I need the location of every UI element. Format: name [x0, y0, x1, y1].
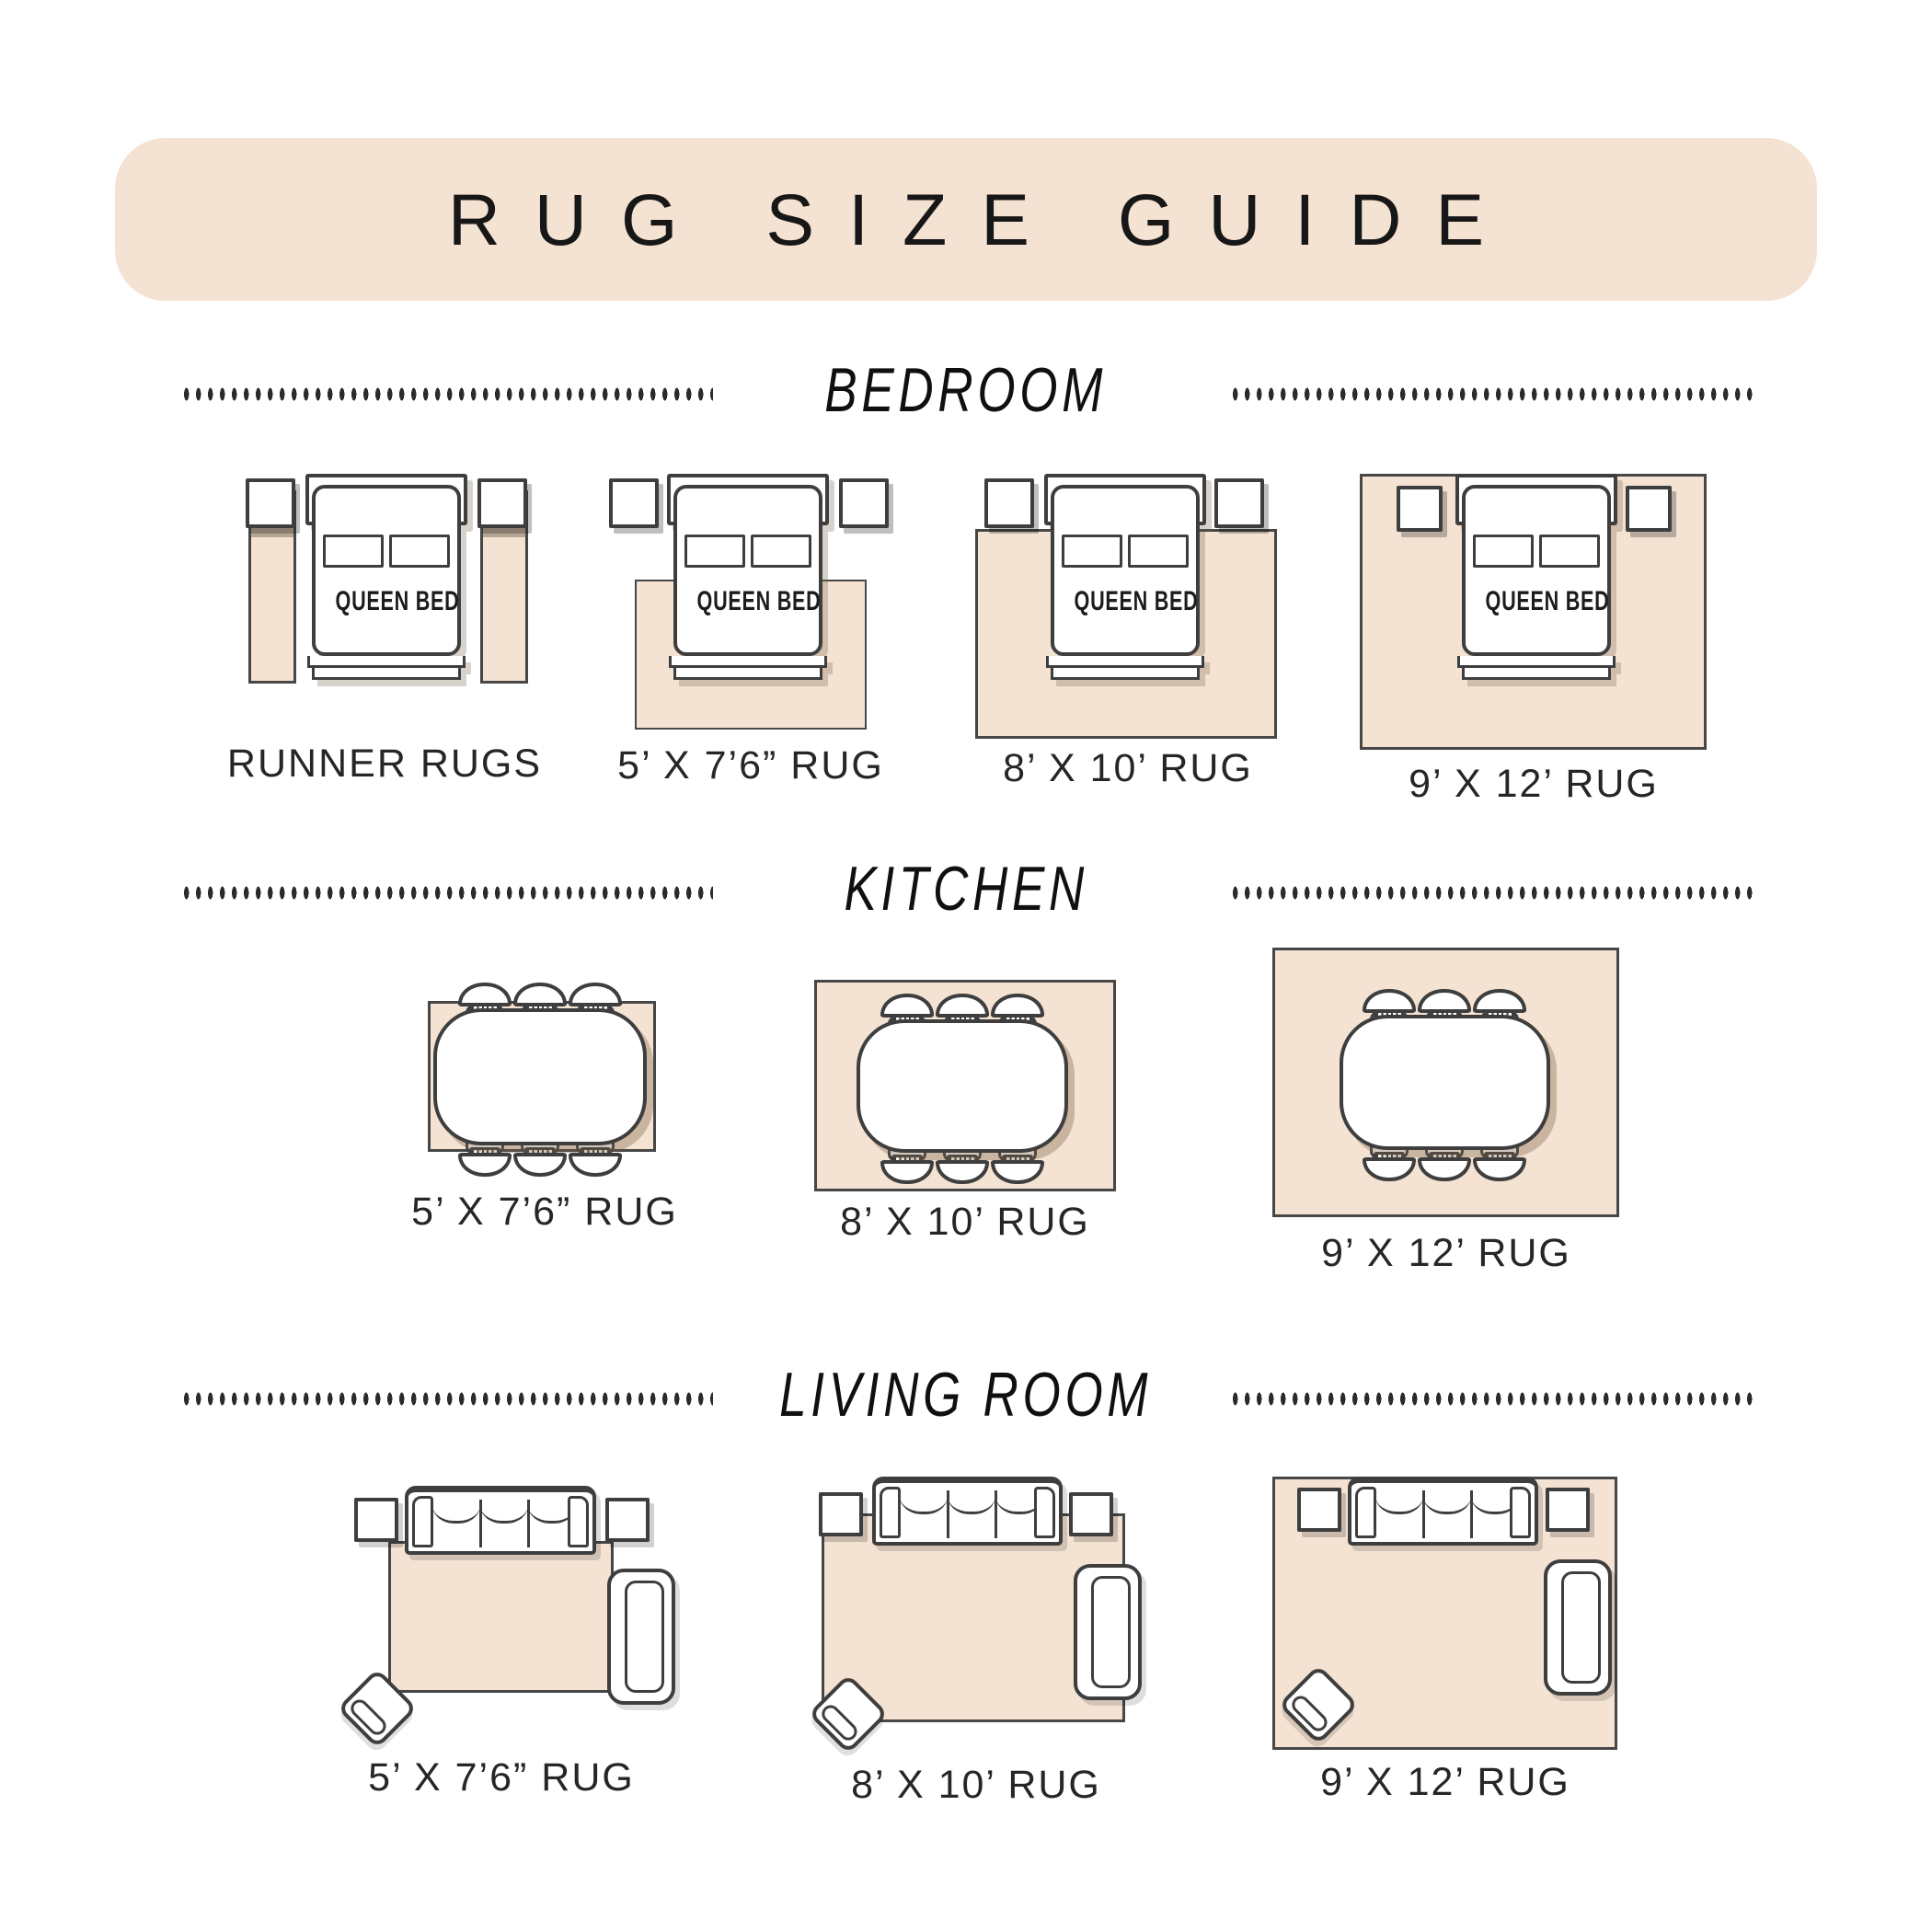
queen-bed: QUEEN BED: [1455, 474, 1617, 684]
sofa-cushion: [1375, 1489, 1423, 1514]
cushion-divider: [995, 1490, 997, 1538]
shadow: [483, 528, 525, 537]
dining-table: [433, 1008, 647, 1145]
foot-blanket: [1051, 668, 1200, 680]
divider-dots: [1233, 1392, 1753, 1406]
sofa-arm: [1034, 1487, 1055, 1538]
diagram-label: 8’ X 10’ RUG: [1003, 746, 1253, 791]
end-table: [1069, 1492, 1113, 1536]
cushion-divider: [1470, 1490, 1473, 1538]
sofa-cushion: [1423, 1489, 1471, 1514]
mattress: QUEEN BED: [312, 485, 461, 656]
sofa: [405, 1486, 596, 1555]
nightstand: [609, 478, 659, 528]
pillow: [389, 535, 450, 568]
divider-dots: [1233, 886, 1753, 900]
bed-label: QUEEN BED: [336, 586, 438, 617]
queen-bed: QUEEN BED: [1044, 474, 1206, 684]
sofa-arm: [1355, 1487, 1376, 1538]
queen-bed: QUEEN BED: [305, 474, 467, 684]
nightstand: [1626, 486, 1672, 532]
bed-label: QUEEN BED: [697, 586, 799, 617]
diagram-label: 9’ X 12’ RUG: [1409, 762, 1659, 807]
sofa-arm: [880, 1487, 901, 1538]
sofa-arm: [412, 1496, 433, 1547]
chair-back: [1561, 1571, 1601, 1684]
chair-back: [1091, 1576, 1131, 1688]
diagram-label: 9’ X 12’ RUG: [1321, 1231, 1571, 1276]
queen-bed: QUEEN BED: [667, 474, 829, 684]
living-room-9x12-diagram: 9’ X 12’ RUG: [1260, 1454, 1739, 1817]
diagram-label: 5’ X 7’6” RUG: [411, 1190, 678, 1235]
kitchen-9x12-diagram: 9’ X 12’ RUG: [1270, 938, 1656, 1279]
mattress: QUEEN BED: [1051, 485, 1200, 656]
bedroom-9x12-diagram: QUEEN BED 9’ X 12’ RUG: [1352, 460, 1739, 810]
foot-blanket: [673, 668, 822, 680]
shadow: [251, 528, 293, 537]
sofa: [1348, 1477, 1538, 1546]
foot-blanket: [1046, 656, 1204, 668]
diagram-label: 8’ X 10’ RUG: [851, 1763, 1101, 1808]
bedroom-8x10-diagram: QUEEN BED 8’ X 10’ RUG: [966, 460, 1352, 800]
cushion-divider: [947, 1490, 949, 1538]
bedroom-runner-rugs-diagram: QUEEN BED RUNNER RUGS: [202, 460, 570, 791]
foot-blanket: [1462, 668, 1611, 680]
diagram-label: RUNNER RUGS: [227, 742, 542, 787]
pillow: [1473, 535, 1534, 568]
bedroom-5x76-diagram: QUEEN BED 5’ X 7’6” RUG: [589, 460, 957, 800]
page-title: RUG SIZE GUIDE: [115, 138, 1817, 301]
bed-label: QUEEN BED: [1075, 586, 1177, 617]
mattress: QUEEN BED: [673, 485, 822, 656]
bed-label: QUEEN BED: [1486, 586, 1588, 617]
lounge-chair: [607, 1569, 675, 1705]
cushion-divider: [479, 1500, 482, 1547]
nightstand: [477, 478, 527, 528]
foot-blanket: [312, 668, 461, 680]
lounge-chair: [1544, 1559, 1612, 1696]
cushion-divider: [1422, 1490, 1425, 1538]
diagram-label: 8’ X 10’ RUG: [840, 1200, 1090, 1245]
foot-blanket: [307, 656, 466, 668]
nightstand: [1214, 478, 1264, 528]
sofa-cushion: [948, 1489, 995, 1514]
sofa-cushion: [432, 1498, 480, 1524]
rug-size-guide-infographic: RUG SIZE GUIDE BEDROOM QUEEN BED RUNNER …: [0, 0, 1932, 1932]
pillow: [1062, 535, 1122, 568]
pillow: [1128, 535, 1189, 568]
chair-back: [347, 1696, 389, 1739]
nightstand: [1397, 486, 1443, 532]
foot-blanket: [1457, 656, 1616, 668]
sofa: [872, 1477, 1063, 1546]
kitchen-5x76-diagram: 5’ X 7’6” RUG: [386, 975, 718, 1251]
diagram-label: 5’ X 7’6” RUG: [617, 743, 884, 788]
title-banner: RUG SIZE GUIDE: [115, 138, 1817, 301]
end-table: [605, 1498, 650, 1542]
end-table: [819, 1492, 863, 1536]
chair-back: [625, 1581, 664, 1693]
end-table: [1546, 1488, 1590, 1532]
mattress: QUEEN BED: [1462, 485, 1611, 656]
nightstand: [246, 478, 295, 528]
pillow: [1539, 535, 1600, 568]
end-table: [1297, 1488, 1341, 1532]
cushion-divider: [527, 1500, 530, 1547]
lounge-chair: [1074, 1564, 1142, 1700]
dining-table: [1340, 1015, 1550, 1150]
pillow: [323, 535, 384, 568]
kitchen-8x10-diagram: 8’ X 10’ RUG: [810, 966, 1196, 1251]
rug: [388, 1541, 614, 1693]
end-table: [354, 1498, 398, 1542]
sofa-cushion: [900, 1489, 948, 1514]
sofa-arm: [1510, 1487, 1531, 1538]
dining-table: [857, 1019, 1068, 1153]
living-room-8x10-diagram: 8’ X 10’ RUG: [754, 1463, 1214, 1812]
sofa-arm: [568, 1496, 589, 1547]
living-room-5x76-diagram: 5’ X 7’6” RUG: [258, 1463, 718, 1812]
nightstand: [839, 478, 889, 528]
chair-back: [818, 1702, 860, 1744]
divider-dots: [1233, 387, 1753, 401]
sofa-cushion: [480, 1498, 528, 1524]
pillow: [684, 535, 745, 568]
nightstand: [984, 478, 1034, 528]
diagram-label: 9’ X 12’ RUG: [1320, 1760, 1570, 1805]
diagram-label: 5’ X 7’6” RUG: [368, 1755, 635, 1800]
foot-blanket: [669, 656, 827, 668]
pillow: [751, 535, 811, 568]
